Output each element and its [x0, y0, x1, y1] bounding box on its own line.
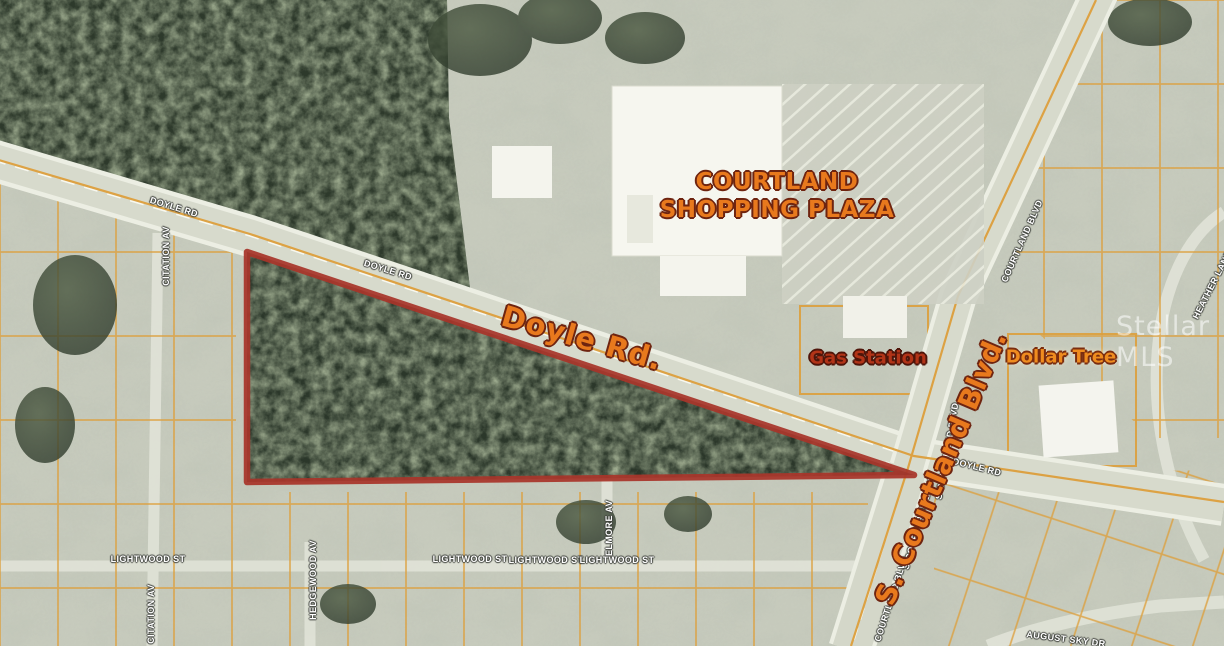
street-label-citation-av-1: CITATION AV [161, 226, 171, 286]
street-label-hedgewood-av: HEDGEWOOD AV [308, 540, 318, 620]
plaza-label-line2: SHOPPING PLAZA [660, 196, 895, 224]
street-label-lightwood-2: LIGHTWOOD ST [433, 554, 508, 564]
watermark: Stellar MLS [1116, 311, 1224, 373]
street-label-lightwood-3: LIGHTWOOD ST [509, 555, 584, 565]
street-label-citation-av-2: CITATION AV [146, 584, 156, 644]
gas-station-label: Gas Station [809, 348, 927, 369]
dollar-tree-building [1039, 380, 1119, 457]
dollar-tree-label: Dollar Tree [1006, 347, 1117, 368]
street-label-elmore-av: ELMORE AV [604, 500, 614, 556]
plaza-label-line1: COURTLAND [660, 168, 895, 196]
aerial-map: DOYLE RD DOYLE RD DOYLE RD COURTLAND BLV… [0, 0, 1224, 646]
street-label-lightwood-1: LIGHTWOOD ST [111, 554, 186, 564]
shopping-plaza-label: COURTLAND SHOPPING PLAZA [660, 168, 895, 224]
gas-station-building [843, 296, 907, 338]
street-label-lightwood-4: LIGHTWOOD ST [580, 555, 655, 565]
outparcel-building [492, 146, 552, 198]
